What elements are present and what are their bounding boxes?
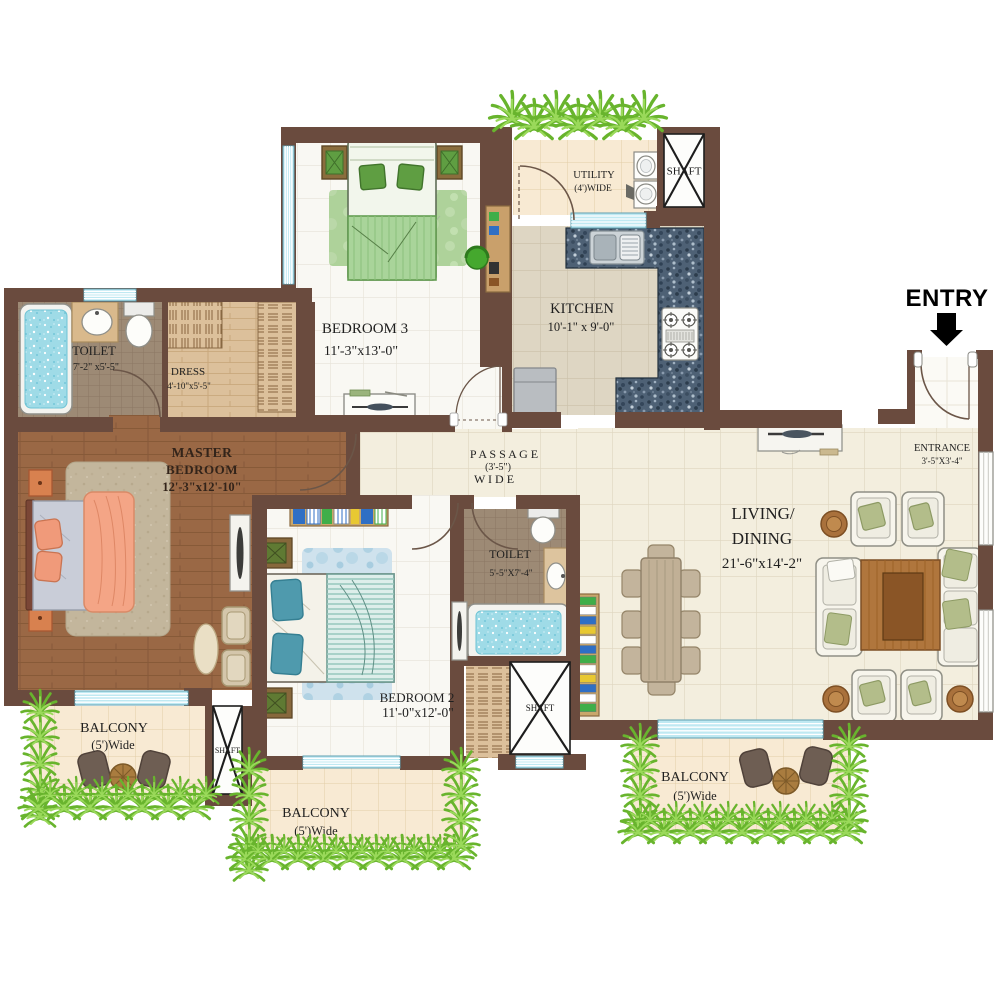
svg-text:5'-5"X7'-4": 5'-5"X7'-4" (489, 569, 532, 579)
svg-text:KITCHEN: KITCHEN (550, 301, 614, 317)
svg-text:SHAFT: SHAFT (667, 165, 702, 177)
svg-text:11'-0"x12'-0": 11'-0"x12'-0" (382, 705, 454, 720)
svg-text:BEDROOM: BEDROOM (166, 462, 238, 477)
svg-text:TOILET: TOILET (72, 344, 116, 358)
svg-text:(4')WIDE: (4')WIDE (574, 183, 612, 194)
svg-text:ENTRY: ENTRY (906, 285, 989, 312)
svg-text:DINING: DINING (732, 529, 792, 548)
svg-text:ENTRANCE: ENTRANCE (914, 443, 970, 454)
svg-text:SHAFT: SHAFT (526, 703, 555, 713)
svg-text:(5')Wide: (5')Wide (91, 738, 135, 752)
svg-text:11'-3"x13'-0": 11'-3"x13'-0" (324, 344, 398, 359)
svg-text:21'-6"x14'-2": 21'-6"x14'-2" (722, 556, 802, 572)
svg-text:BALCONY: BALCONY (80, 721, 148, 736)
svg-text:BEDROOM 3: BEDROOM 3 (322, 321, 408, 337)
svg-text:(5')Wide: (5')Wide (673, 789, 717, 803)
svg-text:MASTER: MASTER (172, 445, 233, 460)
svg-text:12'-3"x12'-10": 12'-3"x12'-10" (162, 480, 241, 494)
svg-text:BEDROOM 2: BEDROOM 2 (380, 690, 455, 705)
svg-text:SHAFT: SHAFT (215, 746, 240, 755)
svg-text:DRESS: DRESS (171, 366, 205, 378)
svg-text:BALCONY: BALCONY (661, 770, 729, 785)
svg-text:10'-1" x 9'-0": 10'-1" x 9'-0" (548, 320, 615, 334)
svg-text:3'-5"X3'-4": 3'-5"X3'-4" (921, 456, 962, 466)
svg-text:(5')Wide: (5')Wide (294, 824, 338, 838)
svg-text:4'-10"x5'-5": 4'-10"x5'-5" (167, 381, 211, 391)
svg-text:W I D E: W I D E (474, 472, 514, 486)
svg-text:LIVING/: LIVING/ (731, 504, 795, 523)
svg-text:BALCONY: BALCONY (282, 806, 350, 821)
svg-text:7'-2" x5'-5": 7'-2" x5'-5" (73, 362, 119, 373)
svg-text:UTILITY: UTILITY (573, 170, 615, 181)
svg-text:P A S S A G E: P A S S A G E (470, 447, 538, 461)
svg-text:TOILET: TOILET (489, 547, 531, 561)
